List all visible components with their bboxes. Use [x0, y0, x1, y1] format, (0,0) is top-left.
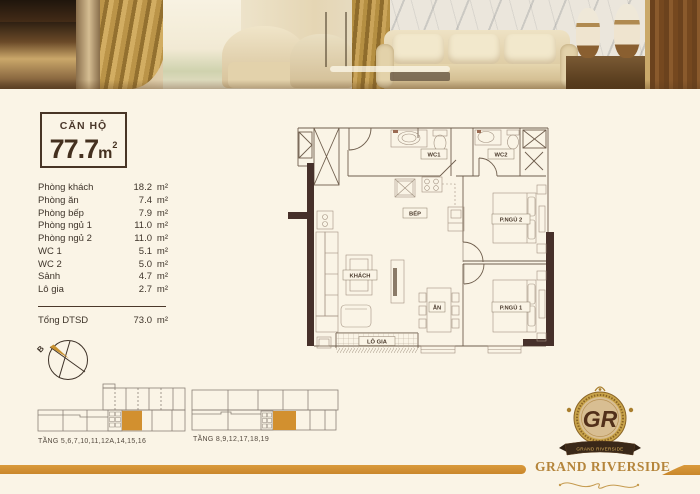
compass: B — [34, 336, 92, 386]
brand-wordmark: GRAND RIVERSIDE — [535, 459, 659, 475]
room-name: WC 1 — [38, 246, 126, 259]
room-unit: m² — [152, 182, 168, 195]
total-label: Tổng DTSD — [38, 315, 126, 327]
crown-dot-icon — [599, 388, 602, 391]
table-total-row: Tổng DTSD73.0m² — [38, 315, 168, 327]
left-leaf-icon — [567, 408, 571, 412]
floor-key-label-left: TẦNG 5,6,7,10,11,12A,14,15,16 — [38, 438, 146, 445]
room-name: Phòng ngủ 2 — [38, 233, 126, 246]
flourish-curve — [560, 483, 638, 488]
room-area: 5.1 — [126, 246, 152, 259]
photo-vase-2 — [614, 4, 640, 58]
room-label-an: ĂN — [433, 305, 441, 312]
flourish-dot-right — [637, 484, 639, 486]
brand-flourish-icon — [556, 477, 642, 493]
ribbon-text: GRAND RIVERSIDE — [576, 447, 623, 452]
room-unit: m² — [152, 284, 168, 297]
room-name: Phòng khách — [38, 182, 126, 195]
room-unit: m² — [152, 220, 168, 233]
room-area-table: Phòng khách18.2m² Phòng ăn7.4m² Phòng bế… — [38, 182, 168, 327]
room-label-wc1: WC1 — [428, 153, 442, 159]
right-leaf-icon — [629, 408, 633, 412]
total-unit: m² — [152, 315, 168, 327]
room-area: 11.0 — [126, 233, 152, 246]
room-area: 5.0 — [126, 259, 152, 272]
room-label-khach: KHÁCH — [350, 273, 371, 280]
room-label-bep: BẾP — [409, 211, 421, 218]
photo-column — [76, 0, 102, 89]
table-divider — [38, 306, 166, 307]
room-unit: m² — [152, 259, 168, 272]
room-area: 11.0 — [126, 220, 152, 233]
table-row: Phòng ngủ 111.0m² — [38, 220, 168, 233]
floor-key-diagram-right — [190, 386, 342, 434]
elevator-core — [263, 413, 272, 428]
table-row: Phòng bếp7.9m² — [38, 208, 168, 221]
room-name: Phòng ăn — [38, 195, 126, 208]
room-unit: m² — [152, 233, 168, 246]
table-row: WC 25.0m² — [38, 259, 168, 272]
room-label-wc2: WC2 — [495, 153, 508, 159]
floor-key-label-right: TẦNG 8,9,12,17,18,19 — [193, 436, 269, 443]
table-row: Sảnh4.7m² — [38, 271, 168, 284]
room-unit: m² — [152, 195, 168, 208]
brand-medallion: GR GRAND RIVERSIDE — [555, 382, 645, 460]
elevator-core — [110, 412, 121, 427]
floor-key-diagram-left — [35, 383, 187, 435]
compass-north-label: B — [35, 344, 46, 355]
flourish-dot-left — [559, 484, 561, 486]
highlighted-unit — [273, 411, 296, 430]
photo-sofa-cushion — [392, 34, 444, 64]
room-area: 4.7 — [126, 271, 152, 284]
room-name: WC 2 — [38, 259, 126, 272]
brochure-page: CĂN HỘ 77.7m2 Phòng khách18.2m² Phòng ăn… — [0, 0, 700, 494]
table-row: Phòng khách18.2m² — [38, 182, 168, 195]
room-name: Sảnh — [38, 271, 126, 284]
total-value: 73.0 — [126, 315, 152, 327]
unit-area-unit: m — [98, 145, 112, 162]
table-row: WC 15.1m² — [38, 246, 168, 259]
building-outline — [38, 384, 185, 431]
photo-vase-1 — [576, 8, 600, 58]
room-label-bedroom1: P.NGỦ 1 — [500, 305, 523, 312]
photo-sofa-cushion — [504, 34, 556, 64]
header-photo — [0, 0, 700, 89]
room-area: 18.2 — [126, 182, 152, 195]
room-name: Phòng ngủ 1 — [38, 220, 126, 233]
compass-north-needle — [50, 345, 69, 359]
room-name: Phòng bếp — [38, 208, 126, 221]
brand-monogram: GR — [583, 406, 618, 432]
room-area: 7.9 — [126, 208, 152, 221]
highlighted-unit — [122, 411, 142, 431]
unit-card-area: 77.7m2 — [42, 132, 125, 167]
table-row: Phòng ăn7.4m² — [38, 195, 168, 208]
floor-plan: WC1 WC2 BẾP KHÁCH ĂN P.NGỦ 2 P.NGỦ 1 LÔ … — [283, 118, 570, 365]
footer-accent-bar-left — [0, 465, 526, 474]
unit-card-title: CĂN HỘ — [42, 120, 125, 132]
room-unit: m² — [152, 271, 168, 284]
photo-console-table — [0, 22, 78, 89]
room-unit: m² — [152, 208, 168, 221]
photo-wood-panel — [650, 0, 700, 89]
photo-sofa-cushion — [448, 34, 500, 64]
room-label-logia: LÔ GIA — [367, 338, 388, 346]
unit-area-value: 77.7 — [50, 134, 99, 164]
plan-furniture — [316, 130, 546, 353]
room-unit: m² — [152, 246, 168, 259]
photo-floor-shadow — [0, 80, 700, 89]
room-name: Lô gia — [38, 284, 126, 297]
room-label-bedroom2: P.NGỦ 2 — [500, 217, 522, 224]
table-row: Lô gia2.7m² — [38, 284, 168, 297]
unit-area-card: CĂN HỘ 77.7m2 — [40, 112, 127, 168]
room-area: 2.7 — [126, 284, 152, 297]
plan-structural-walls — [288, 163, 554, 346]
table-row: Phòng ngủ 211.0m² — [38, 233, 168, 246]
unit-area-sup: 2 — [112, 140, 117, 150]
room-area: 7.4 — [126, 195, 152, 208]
